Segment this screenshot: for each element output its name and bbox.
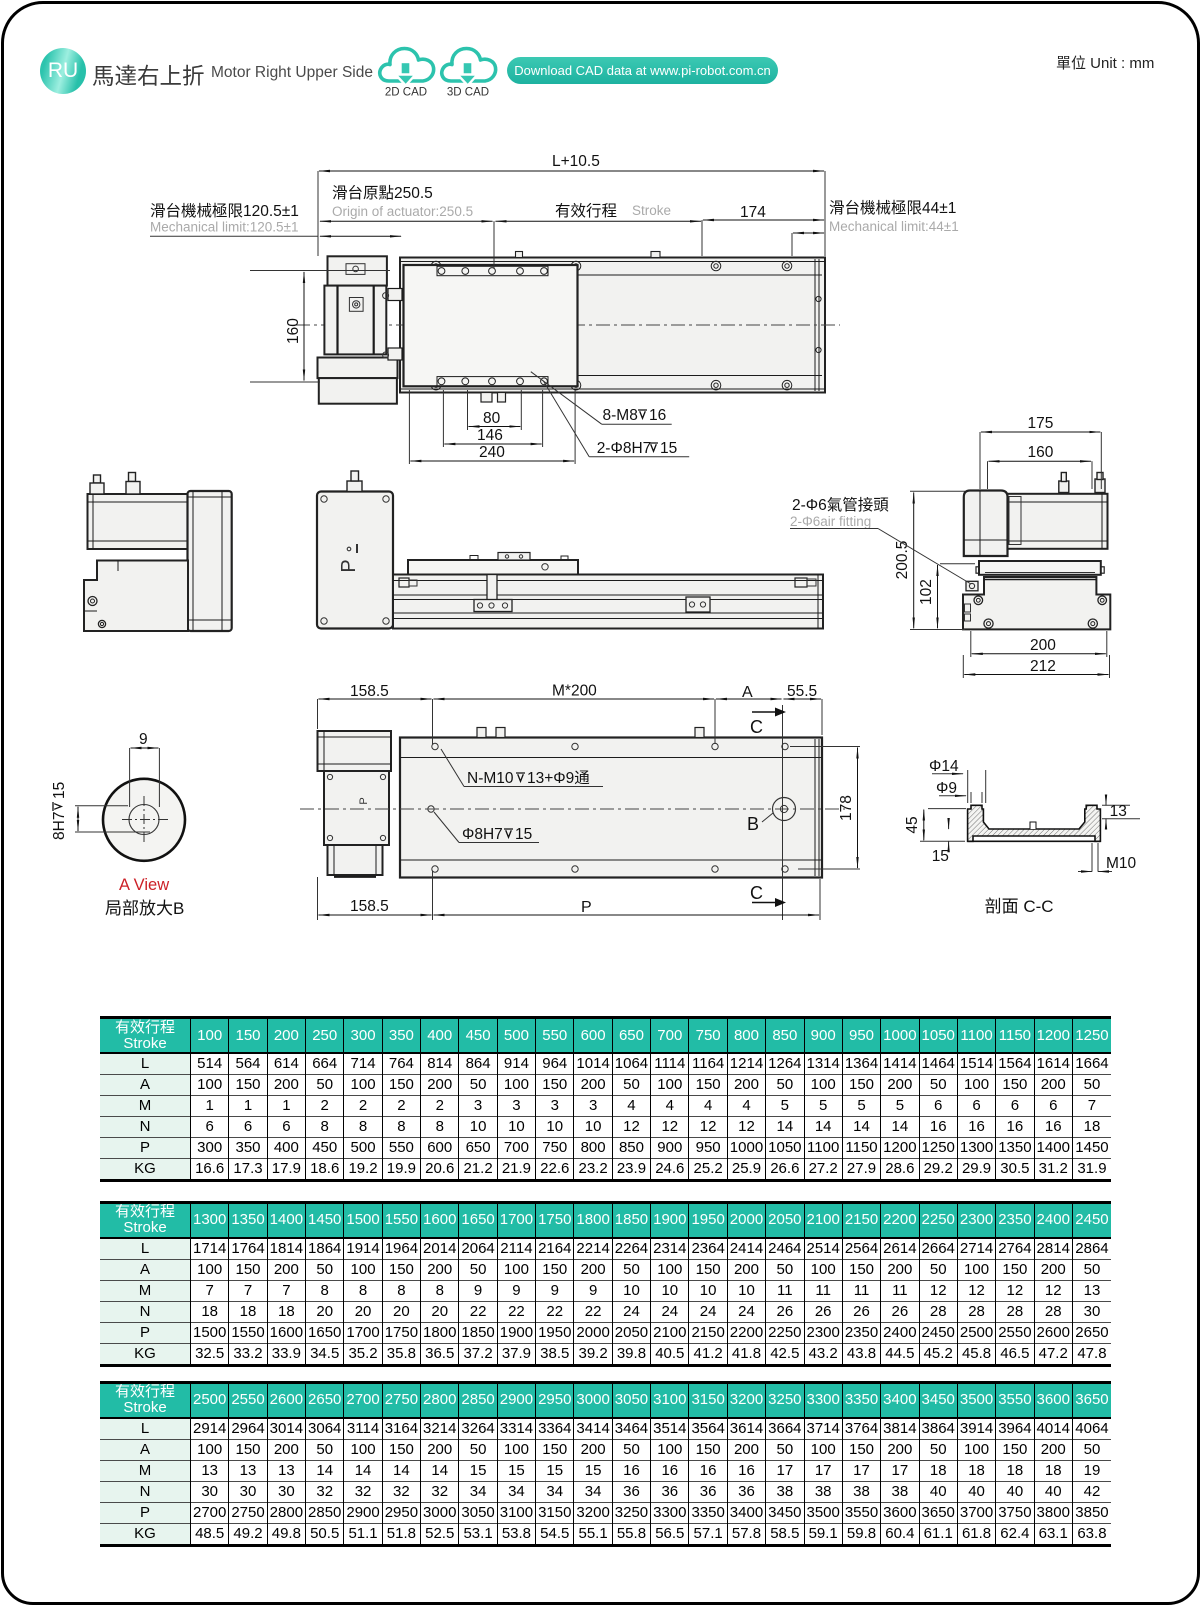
svg-text:15: 15	[515, 826, 532, 843]
svg-text:8H7: 8H7	[51, 812, 68, 840]
svg-text:15: 15	[660, 440, 677, 457]
svg-text:局部放大B: 局部放大B	[105, 899, 184, 918]
svg-text:Φ14: Φ14	[929, 758, 959, 775]
svg-text:Φ9: Φ9	[936, 780, 957, 797]
svg-text:175: 175	[1028, 415, 1054, 432]
svg-text:A: A	[742, 684, 753, 701]
svg-text:Stroke: Stroke	[632, 203, 671, 218]
svg-text:P: P	[581, 899, 592, 916]
svg-text:有效行程: 有效行程	[555, 202, 617, 220]
svg-text:L+10.5: L+10.5	[552, 153, 600, 170]
svg-text:滑台機械極限44±1: 滑台機械極限44±1	[829, 199, 956, 217]
svg-text:2-Φ6氣管接頭: 2-Φ6氣管接頭	[792, 496, 889, 514]
svg-text:13: 13	[1110, 803, 1127, 820]
svg-text:滑台原點250.5: 滑台原點250.5	[332, 184, 433, 202]
svg-text:2-Φ8H7: 2-Φ8H7	[597, 440, 652, 457]
svg-text:N-M10: N-M10	[467, 770, 514, 787]
svg-text:240: 240	[479, 444, 505, 461]
svg-text:102: 102	[918, 579, 935, 605]
svg-text:Φ8H7: Φ8H7	[462, 826, 503, 843]
svg-text:M*200: M*200	[552, 683, 597, 700]
svg-text:A View: A View	[119, 876, 169, 894]
svg-text:80: 80	[483, 410, 501, 427]
svg-text:剖面 C-C: 剖面 C-C	[985, 897, 1054, 916]
svg-text:M10: M10	[1106, 855, 1137, 872]
svg-text:55.5: 55.5	[787, 683, 817, 700]
svg-text:178: 178	[838, 795, 855, 821]
svg-text:8-M8: 8-M8	[603, 407, 638, 424]
svg-text:146: 146	[477, 427, 503, 444]
svg-text:212: 212	[1030, 658, 1056, 675]
svg-text:Mechanical limit:120.5±1: Mechanical limit:120.5±1	[150, 220, 298, 235]
svg-text:13+Φ9通: 13+Φ9通	[527, 769, 590, 787]
svg-text:158.5: 158.5	[350, 683, 389, 700]
svg-text:P: P	[338, 559, 360, 572]
svg-text:16: 16	[649, 407, 666, 424]
svg-text:Origin of actuator:250.5: Origin of actuator:250.5	[332, 204, 473, 219]
svg-text:C: C	[750, 717, 763, 737]
svg-text:B: B	[747, 814, 759, 834]
svg-text:160: 160	[285, 318, 302, 344]
svg-text:200: 200	[1030, 637, 1056, 654]
svg-text:2-Φ6air fitting: 2-Φ6air fitting	[790, 514, 871, 529]
svg-text:滑台機械極限120.5±1: 滑台機械極限120.5±1	[150, 202, 299, 220]
svg-text:160: 160	[1028, 444, 1054, 461]
svg-text:158.5: 158.5	[350, 898, 389, 915]
svg-text:C: C	[750, 883, 763, 903]
svg-text:Mechanical limit:44±1: Mechanical limit:44±1	[829, 219, 959, 234]
svg-text:P: P	[358, 797, 370, 804]
svg-text:174: 174	[740, 204, 766, 221]
svg-text:15: 15	[51, 782, 68, 799]
svg-text:15: 15	[932, 848, 949, 865]
svg-text:9: 9	[139, 731, 148, 748]
svg-text:45: 45	[904, 816, 921, 833]
